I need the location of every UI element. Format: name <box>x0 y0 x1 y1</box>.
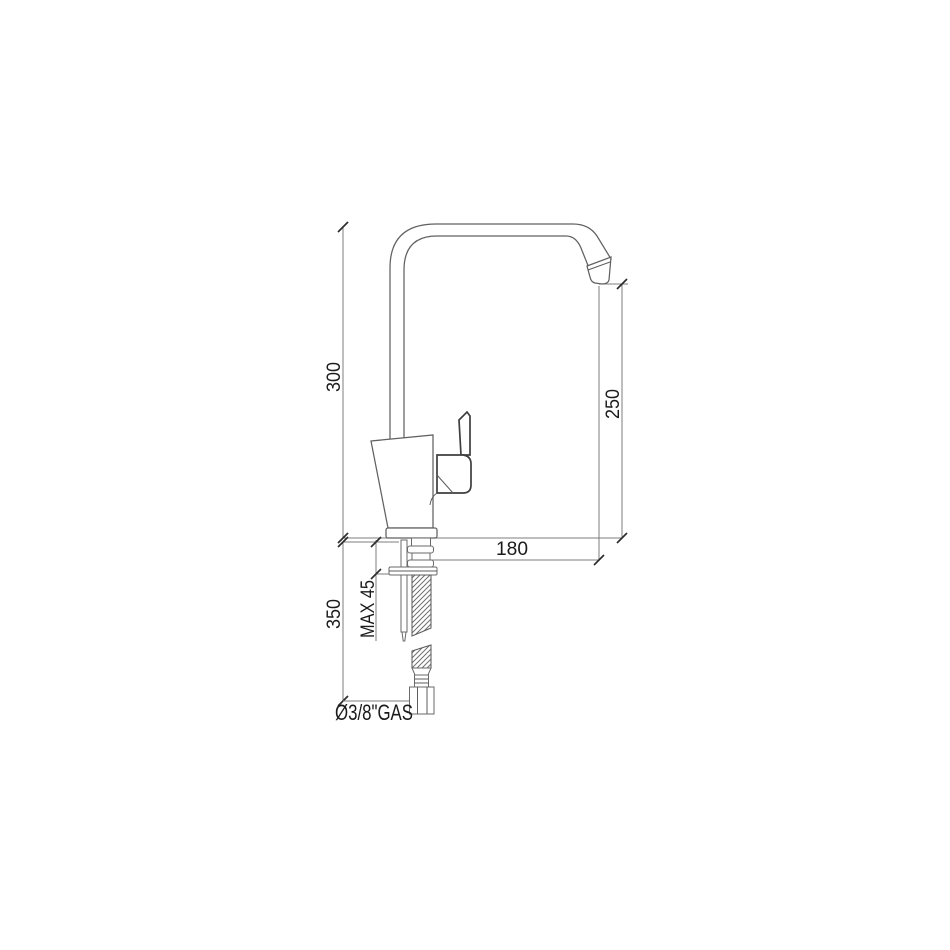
dim-label-300: 300 <box>324 362 345 392</box>
fixing-stud-tip <box>402 632 406 641</box>
handle-lever <box>459 412 470 455</box>
shank-neck-upper <box>412 538 431 546</box>
connection-thread-label: Ø3/8"GAS <box>335 700 413 725</box>
dim-label-180: 180 <box>496 539 528 560</box>
dim-label-250: 250 <box>603 389 624 419</box>
base-flange <box>386 528 437 538</box>
faucet-technical-drawing: 300 250 180 MAX 45 350 Ø3/8"GAS <box>0 0 950 950</box>
shank-neck-lower <box>412 553 430 560</box>
handle-joint <box>437 455 471 493</box>
flex-hose-lower <box>412 645 431 668</box>
shank-ring-upper <box>408 546 434 553</box>
connection-nut <box>410 687 435 714</box>
dim-label-max45: MAX 45 <box>358 580 379 638</box>
faucet-above-deck <box>371 224 611 538</box>
spout-tube <box>390 224 611 441</box>
dimension-labels: 300 250 180 MAX 45 350 Ø3/8"GAS <box>324 362 624 725</box>
mixer-body <box>371 435 433 528</box>
dim-label-350: 350 <box>324 599 345 629</box>
hose-crimp-collar <box>415 675 429 687</box>
under-deck-hardware <box>389 538 437 714</box>
fixing-stud <box>401 540 407 632</box>
shank-ring-lower <box>408 560 434 567</box>
drawing-sheet: 300 250 180 MAX 45 350 Ø3/8"GAS <box>0 0 950 950</box>
hose-taper <box>412 668 431 675</box>
flex-hose-upper <box>412 575 431 636</box>
